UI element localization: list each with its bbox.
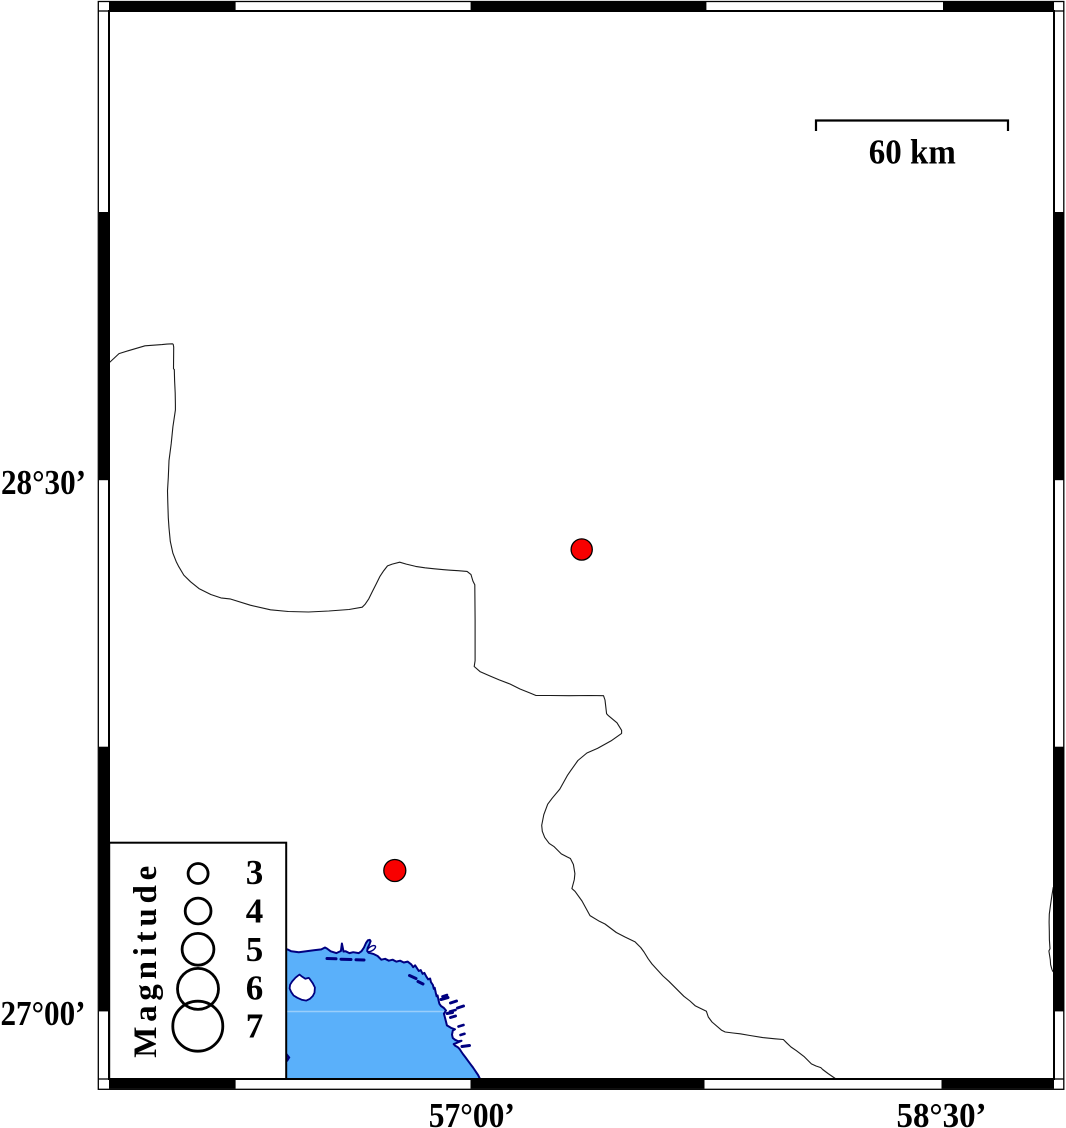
svg-text:57°00’: 57°00’ xyxy=(429,1096,515,1128)
svg-text:6: 6 xyxy=(246,968,264,1007)
svg-text:28°30’: 28°30’ xyxy=(1,463,86,502)
svg-text:4: 4 xyxy=(246,892,264,931)
svg-text:27°00’: 27°00’ xyxy=(1,994,86,1033)
svg-text:3: 3 xyxy=(246,853,264,892)
svg-text:Magnitude: Magnitude xyxy=(128,861,164,1058)
svg-text:7: 7 xyxy=(246,1007,264,1046)
svg-text:60 km: 60 km xyxy=(869,133,956,172)
svg-text:5: 5 xyxy=(246,930,264,969)
svg-text:58°30’: 58°30’ xyxy=(897,1096,987,1128)
